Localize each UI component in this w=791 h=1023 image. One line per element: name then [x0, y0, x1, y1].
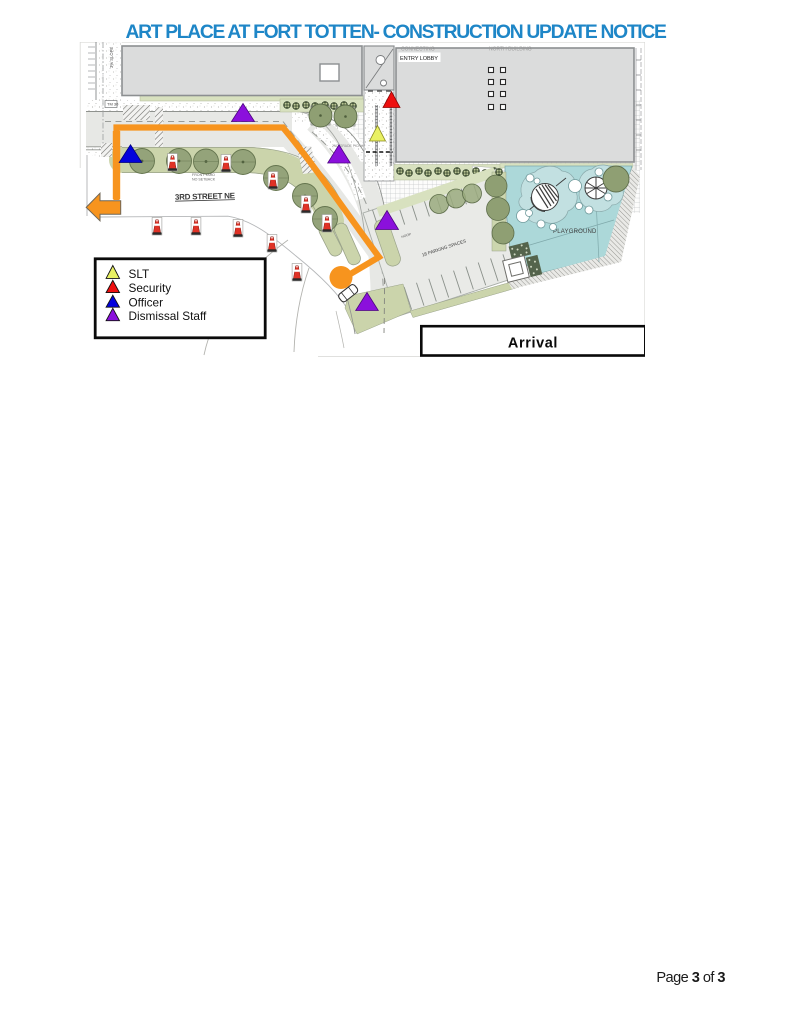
svg-text:SLT: SLT: [129, 267, 150, 281]
svg-text:ENTRY LOBBY: ENTRY LOBBY: [400, 56, 438, 62]
svg-text:3RD STREET NE: 3RD STREET NE: [175, 191, 236, 202]
svg-text:CONNECTING: CONNECTING: [401, 47, 435, 53]
svg-text:Officer: Officer: [129, 295, 164, 309]
svg-text:Security: Security: [129, 281, 172, 295]
svg-text:Arrival: Arrival: [508, 336, 558, 352]
svg-text:NORTH BUILDING: NORTH BUILDING: [489, 47, 532, 53]
svg-text:FRONT YARD: FRONT YARD: [192, 173, 215, 177]
svg-text:TM 30: TM 30: [107, 102, 119, 107]
svg-text:PLAYGROUND: PLAYGROUND: [553, 229, 597, 235]
svg-text:Dismissal Staff: Dismissal Staff: [129, 309, 208, 323]
svg-text:3% SLOPE: 3% SLOPE: [109, 47, 114, 68]
svg-text:NO SETBACK: NO SETBACK: [192, 178, 216, 182]
